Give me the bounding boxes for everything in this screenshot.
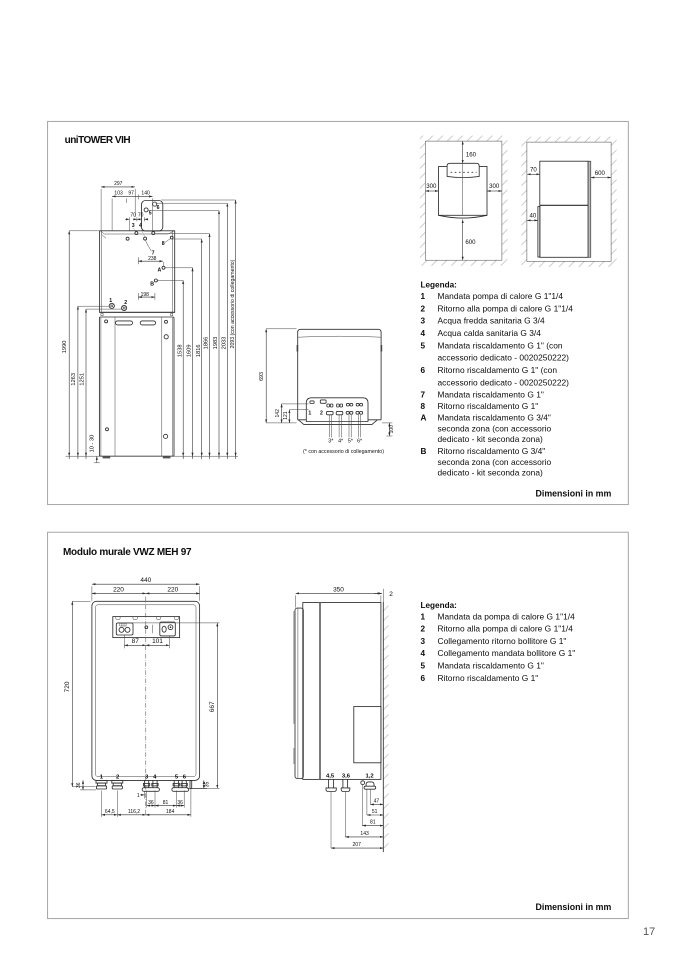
svg-text:97: 97 xyxy=(128,191,134,197)
svg-text:Dimensioni in mm: Dimensioni in mm xyxy=(536,488,612,498)
svg-text:2: 2 xyxy=(320,410,323,416)
svg-text:B: B xyxy=(421,447,427,456)
svg-text:100: 100 xyxy=(389,425,395,434)
svg-text:1609: 1609 xyxy=(187,344,193,357)
svg-text:116,2: 116,2 xyxy=(128,809,140,815)
svg-text:dedicato - kit seconda zona): dedicato - kit seconda zona) xyxy=(438,434,543,444)
svg-text:121: 121 xyxy=(283,411,289,420)
svg-text:1: 1 xyxy=(421,292,426,301)
svg-text:693: 693 xyxy=(259,372,265,381)
svg-text:2: 2 xyxy=(421,625,426,634)
svg-text:8: 8 xyxy=(162,241,165,247)
svg-text:1: 1 xyxy=(137,793,140,799)
svg-text:dedicato - kit seconda zona): dedicato - kit seconda zona) xyxy=(438,467,543,477)
svg-text:1251: 1251 xyxy=(79,373,85,386)
svg-text:4*: 4* xyxy=(338,439,343,445)
svg-text:36: 36 xyxy=(76,782,82,788)
svg-text:667: 667 xyxy=(209,701,216,712)
svg-text:142: 142 xyxy=(275,409,281,418)
svg-text:seconda zona (con accessorio: seconda zona (con accessorio xyxy=(438,457,552,467)
svg-text:1816: 1816 xyxy=(196,344,202,357)
svg-text:5: 5 xyxy=(149,211,152,217)
svg-text:Ritorno alla pompa di calore G: Ritorno alla pompa di calore G 1"1/4 xyxy=(438,303,574,313)
svg-text:600: 600 xyxy=(465,239,476,246)
svg-text:36: 36 xyxy=(177,800,183,806)
svg-text:3: 3 xyxy=(132,223,135,229)
svg-text:(* con accessorio di collegame: (* con accessorio di collegamento) xyxy=(303,449,384,455)
svg-text:198: 198 xyxy=(141,292,150,298)
svg-text:1: 1 xyxy=(109,298,112,304)
svg-text:40: 40 xyxy=(530,213,537,220)
svg-text:seconda zona (con accessorio: seconda zona (con accessorio xyxy=(438,423,552,433)
svg-text:600: 600 xyxy=(595,170,606,177)
svg-text:accessorio dedicato - 00202502: accessorio dedicato - 0020250222) xyxy=(438,353,570,363)
svg-text:accessorio dedicato - 00202502: accessorio dedicato - 0020250222) xyxy=(438,377,570,387)
svg-text:5: 5 xyxy=(421,341,426,350)
svg-text:350: 350 xyxy=(333,586,344,593)
svg-text:70: 70 xyxy=(138,213,144,219)
svg-text:2: 2 xyxy=(124,300,127,306)
svg-text:3: 3 xyxy=(421,637,426,646)
svg-text:4: 4 xyxy=(139,223,142,229)
svg-text:Ritorno riscaldamento G 1" (co: Ritorno riscaldamento G 1" (con xyxy=(438,365,558,375)
svg-text:Acqua fredda sanitaria G 3/4: Acqua fredda sanitaria G 3/4 xyxy=(438,316,545,326)
svg-text:2093 (con accessorio di colleg: 2093 (con accessorio di collegamento) xyxy=(230,259,236,348)
svg-text:2033: 2033 xyxy=(222,337,228,350)
svg-text:70: 70 xyxy=(530,167,537,174)
svg-text:Collegamento mandata bollitore: Collegamento mandata bollitore G 1" xyxy=(438,648,576,658)
svg-text:A: A xyxy=(421,413,427,422)
svg-text:Mandata pompa di calore G 1"1/: Mandata pompa di calore G 1"1/4 xyxy=(438,291,564,301)
svg-text:81: 81 xyxy=(370,820,376,826)
svg-text:Collegamento ritorno bollitore: Collegamento ritorno bollitore G 1" xyxy=(438,636,567,646)
svg-text:Ritorno riscaldamento G 3/4": Ritorno riscaldamento G 3/4" xyxy=(438,446,546,456)
svg-text:140: 140 xyxy=(141,191,150,197)
svg-text:Legenda:: Legenda: xyxy=(421,601,457,610)
svg-text:297: 297 xyxy=(114,181,123,187)
svg-text:101: 101 xyxy=(152,638,163,645)
svg-text:7: 7 xyxy=(421,390,426,399)
svg-text:2: 2 xyxy=(421,304,426,313)
svg-text:6: 6 xyxy=(157,205,160,211)
svg-text:35: 35 xyxy=(205,782,211,788)
svg-text:81: 81 xyxy=(163,800,169,806)
svg-text:1990: 1990 xyxy=(62,341,68,354)
svg-text:300: 300 xyxy=(426,183,437,190)
svg-text:3: 3 xyxy=(421,317,426,326)
svg-text:1983: 1983 xyxy=(213,337,219,350)
svg-text:440: 440 xyxy=(140,577,151,584)
svg-text:70: 70 xyxy=(130,213,136,219)
svg-text:3*: 3* xyxy=(328,439,333,445)
svg-text:4,5: 4,5 xyxy=(326,774,335,780)
svg-text:A: A xyxy=(158,268,162,274)
svg-text:Legenda:: Legenda: xyxy=(421,280,457,289)
svg-text:143: 143 xyxy=(360,831,369,837)
svg-text:4: 4 xyxy=(421,649,426,658)
svg-text:207: 207 xyxy=(353,842,362,848)
svg-text:17: 17 xyxy=(643,926,655,938)
svg-text:1: 1 xyxy=(308,410,311,416)
svg-text:4: 4 xyxy=(421,329,426,338)
svg-text:Ritorno alla pompa di calore G: Ritorno alla pompa di calore G 1"1/4 xyxy=(438,624,574,634)
svg-text:720: 720 xyxy=(64,681,71,692)
svg-text:220: 220 xyxy=(113,586,124,593)
svg-text:5: 5 xyxy=(421,662,426,671)
svg-text:6*: 6* xyxy=(357,439,362,445)
svg-text:51: 51 xyxy=(372,809,378,815)
svg-text:10 - 30: 10 - 30 xyxy=(89,435,95,453)
svg-text:160: 160 xyxy=(466,152,477,159)
svg-text:Mandata riscaldamento G 1" (co: Mandata riscaldamento G 1" (con xyxy=(438,340,563,350)
svg-text:1263: 1263 xyxy=(71,373,77,386)
svg-text:1538: 1538 xyxy=(177,344,183,357)
svg-text:Mandata riscaldamento G 1": Mandata riscaldamento G 1" xyxy=(438,661,544,671)
svg-text:Mandata riscaldamento G 1": Mandata riscaldamento G 1" xyxy=(438,389,544,399)
svg-text:Mandata da pompa di calore G 1: Mandata da pompa di calore G 1"1/4 xyxy=(438,611,576,621)
svg-text:Mandata riscaldamento G 3/4": Mandata riscaldamento G 3/4" xyxy=(438,412,551,422)
svg-text:B: B xyxy=(150,281,154,287)
svg-text:Ritorno riscaldamento G 1": Ritorno riscaldamento G 1" xyxy=(438,401,539,411)
svg-text:220: 220 xyxy=(167,586,178,593)
svg-text:1,2: 1,2 xyxy=(365,774,374,780)
svg-text:8: 8 xyxy=(421,402,426,411)
svg-text:184: 184 xyxy=(166,809,175,815)
svg-text:2: 2 xyxy=(389,591,393,598)
svg-text:uniTOWER VIH: uniTOWER VIH xyxy=(65,135,131,146)
svg-text:Dimensioni in mm: Dimensioni in mm xyxy=(536,902,612,912)
svg-text:1866: 1866 xyxy=(204,337,210,350)
svg-text:300: 300 xyxy=(489,183,500,190)
svg-text:Modulo murale VWZ MEH 97: Modulo murale VWZ MEH 97 xyxy=(63,547,192,558)
svg-text:36: 36 xyxy=(148,800,154,806)
svg-text:5*: 5* xyxy=(348,439,353,445)
svg-text:47: 47 xyxy=(374,798,380,804)
svg-text:6: 6 xyxy=(421,674,426,683)
svg-text:6: 6 xyxy=(421,366,426,375)
svg-text:87: 87 xyxy=(132,638,140,645)
svg-text:103: 103 xyxy=(114,191,123,197)
svg-text:238: 238 xyxy=(148,256,157,262)
svg-text:Ritorno riscaldamento G 1": Ritorno riscaldamento G 1" xyxy=(438,673,539,683)
svg-text:64,5: 64,5 xyxy=(105,809,115,815)
svg-text:1: 1 xyxy=(421,612,426,621)
svg-text:3,6: 3,6 xyxy=(342,774,351,780)
svg-text:Acqua calda sanitaria G 3/4: Acqua calda sanitaria G 3/4 xyxy=(438,328,542,338)
